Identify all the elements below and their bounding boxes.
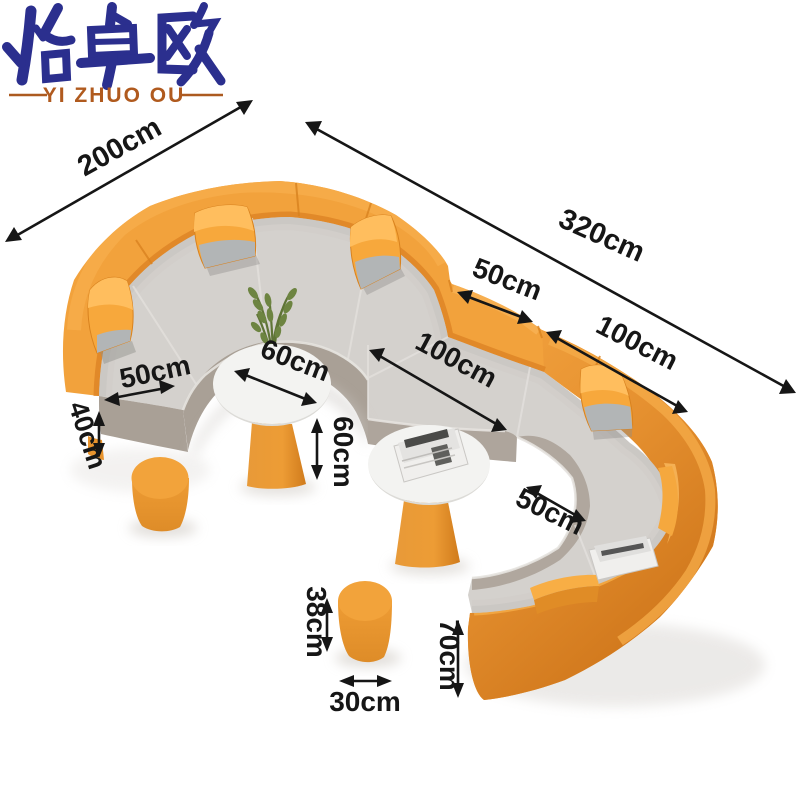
svg-text:70cm: 70cm — [434, 619, 465, 691]
svg-text:30cm: 30cm — [329, 686, 401, 717]
svg-text:60cm: 60cm — [328, 416, 359, 488]
svg-text:38cm: 38cm — [301, 586, 332, 658]
svg-text:YI ZHUO OU: YI ZHUO OU — [43, 84, 186, 107]
